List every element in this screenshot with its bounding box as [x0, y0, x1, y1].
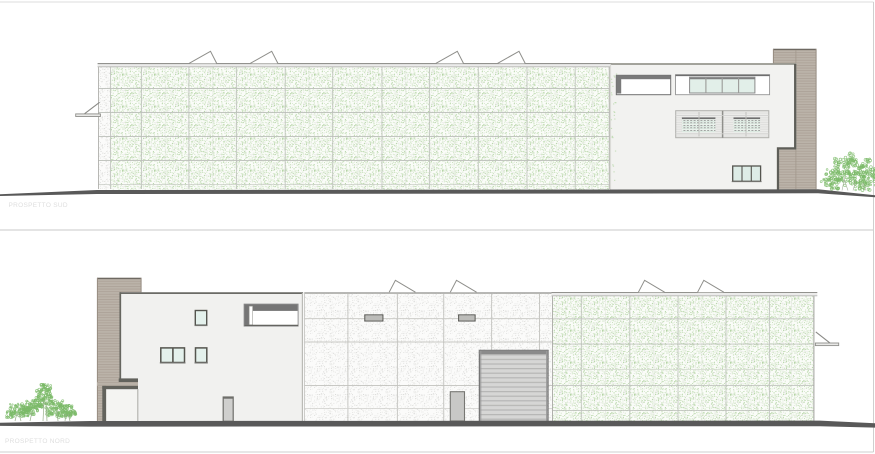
svg-text:PROSPETTO NORD: PROSPETTO NORD	[5, 438, 70, 445]
svg-text:PROSPETTO SUD: PROSPETTO SUD	[9, 202, 68, 209]
